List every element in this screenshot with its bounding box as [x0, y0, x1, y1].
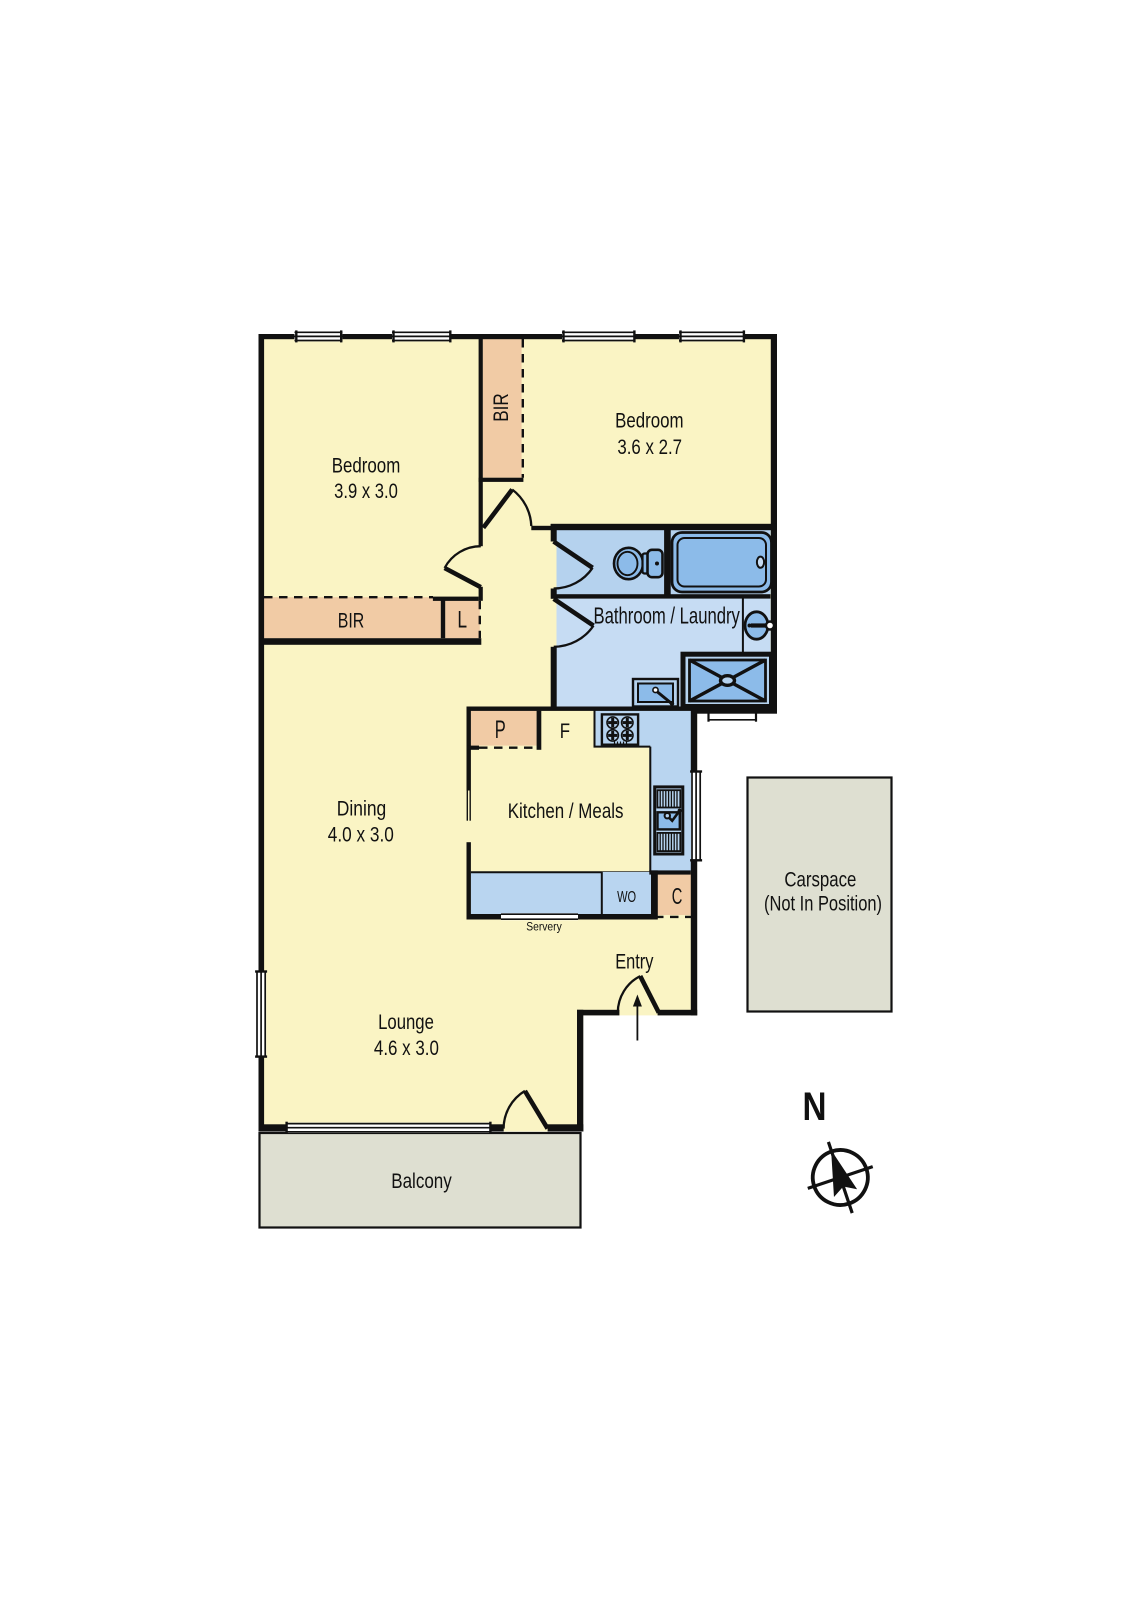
svg-text:Bedroom: Bedroom [615, 409, 683, 433]
svg-text:Lounge: Lounge [378, 1010, 434, 1034]
svg-text:4.6 x 3.0: 4.6 x 3.0 [374, 1036, 439, 1060]
svg-text:Servery: Servery [526, 922, 562, 934]
svg-text:Dining: Dining [337, 796, 387, 820]
svg-text:N: N [803, 1085, 827, 1129]
svg-text:WO: WO [617, 889, 636, 906]
svg-text:3.6 x 2.7: 3.6 x 2.7 [617, 435, 682, 459]
svg-text:Entry: Entry [615, 950, 654, 973]
svg-text:Balcony: Balcony [391, 1169, 452, 1193]
svg-text:(Not In Position): (Not In Position) [764, 891, 882, 915]
svg-text:4.0 x 3.0: 4.0 x 3.0 [328, 823, 394, 847]
svg-text:C: C [672, 883, 683, 909]
svg-text:BIR: BIR [338, 609, 365, 633]
svg-text:3.9 x 3.0: 3.9 x 3.0 [334, 479, 398, 503]
svg-text:P: P [495, 716, 506, 744]
svg-text:BIR: BIR [489, 393, 513, 422]
svg-text:Bathroom / Laundry: Bathroom / Laundry [594, 602, 741, 628]
svg-text:Bedroom: Bedroom [332, 454, 401, 478]
svg-text:F: F [560, 719, 570, 743]
svg-text:L: L [457, 607, 467, 634]
svg-text:Kitchen / Meals: Kitchen / Meals [508, 799, 624, 823]
svg-text:Carspace: Carspace [784, 867, 856, 891]
